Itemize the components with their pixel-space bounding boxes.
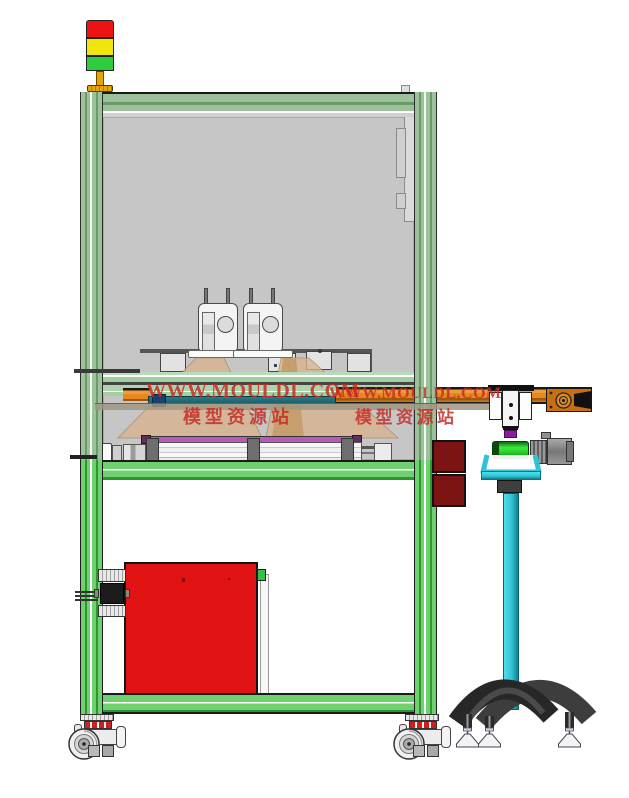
rail-support-post (341, 438, 354, 462)
side-stub-bar (70, 455, 97, 459)
rail-support-post (247, 438, 260, 462)
gearmotor-endcap (566, 441, 574, 462)
mount-side-nub (94, 589, 99, 598)
suction-foot (457, 728, 479, 747)
tower-light-yellow (86, 38, 114, 56)
caster-foot-pad (88, 745, 100, 757)
watermark-site-right: WWW.MOULDL.COM (329, 385, 502, 403)
mount-motor-body (100, 583, 124, 604)
caster-lug (116, 726, 126, 748)
cabinet-mark (182, 578, 185, 582)
wire-line (75, 599, 98, 601)
bolt-dot (509, 416, 513, 420)
frame-crossbeam-lower (80, 460, 437, 480)
signal-tower-light (84, 18, 116, 94)
carriage-center-plate (502, 390, 519, 428)
rail-motor-coupler (112, 445, 122, 461)
rail-gearbox (123, 444, 146, 461)
mount-bracket-top (98, 569, 126, 582)
junction-box-lower (432, 474, 466, 507)
rail-end-block (374, 443, 392, 461)
machine-render-scene: WWW.MOULDL.COM 模型资源站 WWW.MOULDL.COM 模型资源… (0, 0, 629, 798)
shelf-bracket-bar (74, 369, 140, 373)
caster-foot-pad (427, 745, 439, 757)
tower-pole (96, 71, 104, 86)
frame-bottom-rail (80, 693, 437, 714)
tower-light-red (86, 20, 114, 38)
frame-top-rail (80, 92, 437, 117)
junction-box-upper (432, 440, 466, 473)
bolt-dot (509, 403, 513, 407)
mount-bracket-bottom (98, 605, 126, 617)
tower-light-green (86, 56, 114, 71)
cabinet-green-latch (257, 569, 266, 581)
tower-base-flange (87, 85, 113, 92)
conveyor-pulley (546, 388, 592, 412)
caster-foot-pad (413, 745, 425, 757)
leveling-caster-left (66, 712, 138, 762)
gripper-purple (504, 430, 517, 438)
cabinet-mark (228, 578, 230, 580)
watermark-site-left: WWW.MOULDL.COM (146, 380, 360, 403)
caster-mount-plate (80, 714, 114, 721)
pole-adapter-block (497, 480, 522, 493)
caster-mount-plate (405, 714, 439, 721)
side-motor-mount (96, 569, 130, 618)
electrical-cabinet (124, 562, 258, 695)
gearmotor-knob (541, 432, 551, 439)
carriage-side-plate (519, 392, 532, 420)
cradle-base-plate (481, 471, 541, 480)
rail-support-post (146, 438, 159, 462)
suction-foot (479, 728, 501, 747)
suction-foot (559, 728, 581, 747)
cabinet-side-strip (260, 574, 269, 695)
watermark-cn-right: 模型资源站 (355, 403, 458, 428)
watermark-cn-left: 模型资源站 (183, 403, 293, 429)
mount-side-nub (125, 589, 130, 598)
caster-foot-pad (102, 745, 114, 757)
stand-arch-base (443, 666, 599, 758)
